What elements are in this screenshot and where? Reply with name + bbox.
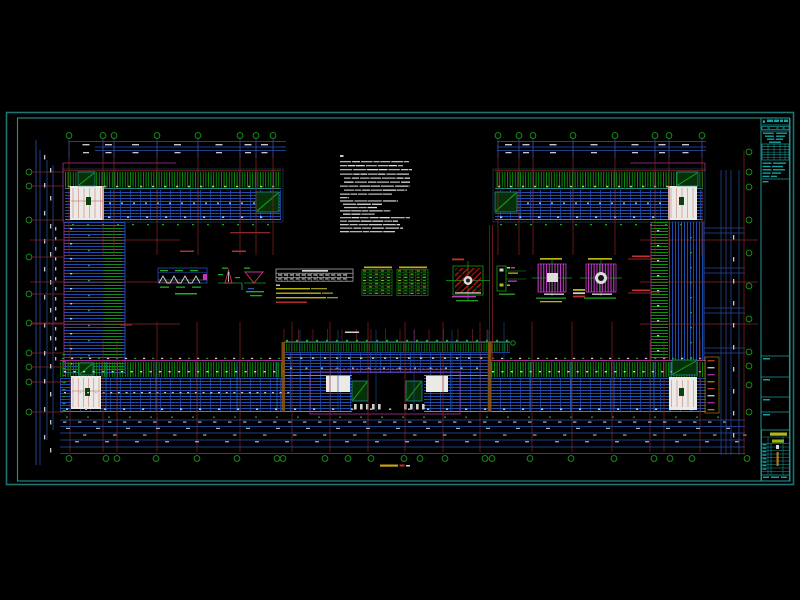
svg-text:■: ■ xyxy=(763,119,766,124)
